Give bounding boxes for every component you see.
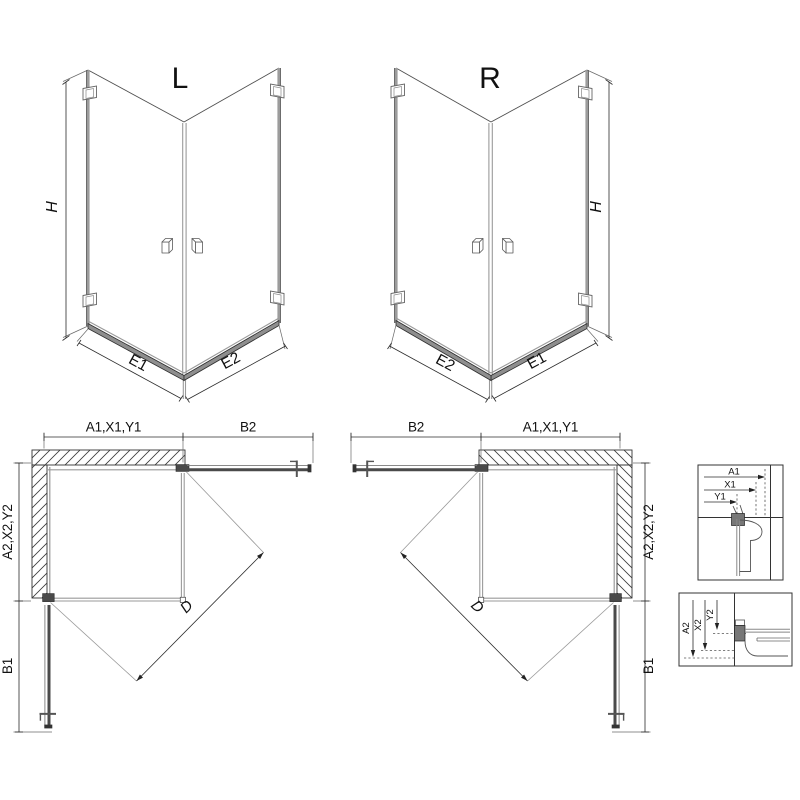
plan-left-door-b1-label: B1 [0, 658, 15, 674]
plan-left-top-width-label: A1,X1,Y1 [86, 420, 141, 435]
perspective-right-geometry [388, 68, 613, 403]
plan-left-geometry [14, 433, 314, 733]
detail-top-profile-section [732, 505, 763, 576]
plan-left-door-b2-label: B2 [240, 420, 256, 435]
plan-right-geometry [351, 433, 651, 733]
detail-x2-label: X2 [693, 619, 704, 631]
plan-right-side-depth-label: A2,X2,Y2 [641, 504, 656, 559]
variant-label-left: L [172, 62, 189, 95]
drawing-page: L H E1 E2 R H E2 E1 A1,X1,Y1 B2 A2,X2,Y2… [0, 0, 800, 800]
e2-label-left: E2 [218, 349, 243, 373]
detail-x1-label: X1 [724, 480, 736, 491]
detail-y2-label: Y2 [705, 609, 716, 621]
plan-right-top-width-label: A1,X1,Y1 [523, 420, 578, 435]
detail-a1-label: A1 [728, 467, 740, 478]
plan-left-view: A1,X1,Y1 B2 A2,X2,Y2 B1 D [0, 420, 313, 733]
plan-right-diagonal-label: D [467, 597, 487, 617]
variant-label-right: R [479, 62, 501, 95]
height-label-left: H [44, 201, 61, 213]
plan-right-view: B2 A1,X1,Y1 A2,X2,Y2 B1 D [351, 420, 656, 733]
detail-wall-profile-bottom: A2 X2 Y2 [679, 593, 792, 666]
plan-left-side-depth-label: A2,X2,Y2 [0, 504, 15, 559]
e1-label-left: E1 [126, 351, 151, 375]
shower-enclosure-technical-drawing: L H E1 E2 R H E2 E1 A1,X1,Y1 B2 A2,X2,Y2… [0, 0, 800, 800]
perspective-right-view: R H E2 E1 [388, 62, 613, 403]
detail-y1-label: Y1 [714, 492, 726, 503]
plan-right-door-b1-label: B1 [641, 658, 656, 674]
plan-right-door-b2-label: B2 [408, 420, 424, 435]
perspective-left-geometry [63, 68, 288, 403]
detail-wall-profile-top: A1 X1 Y1 [698, 465, 783, 580]
detail-bottom-profile-section [735, 620, 791, 656]
detail-a2-label: A2 [681, 622, 692, 634]
perspective-left-view: L H E1 E2 [44, 62, 288, 403]
height-label-right: H [588, 201, 605, 213]
